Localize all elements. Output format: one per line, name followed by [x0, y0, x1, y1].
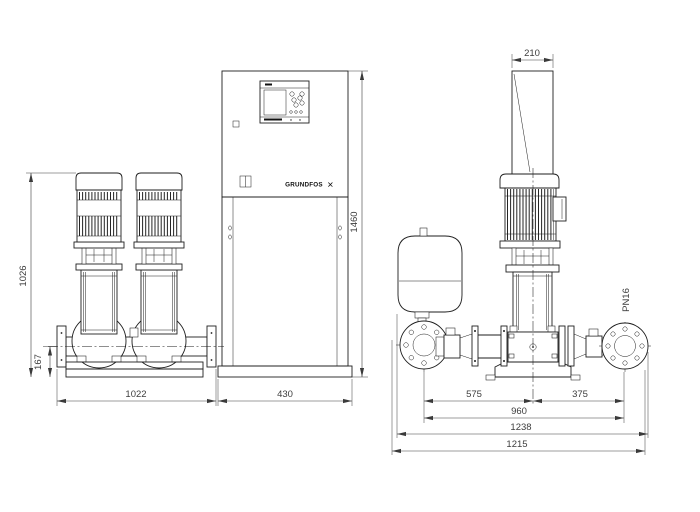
pn16-label: PN16 [621, 288, 632, 312]
dim-430-label: 430 [277, 389, 293, 400]
dimensional-drawing: GRUNDFOS ✕ 1026 167 1022 430 [0, 0, 700, 512]
logo-text: GRUNDFOS [285, 182, 323, 189]
motor-terminal-box [553, 197, 566, 221]
motor-fan-cover [500, 174, 559, 188]
logo-mark: ✕ [327, 181, 334, 190]
suction-valve [444, 335, 460, 358]
dim-167-label: 167 [33, 354, 44, 370]
dim-cabinet-width: 430 [218, 379, 352, 406]
front-view: GRUNDFOS ✕ 1026 167 1022 430 [18, 71, 368, 406]
dim-cabinet-height: 1460 [348, 71, 368, 377]
dim-210-label: 210 [524, 48, 540, 59]
dim-cabinet-depth: 210 [512, 48, 553, 68]
dim-575-label: 575 [466, 389, 482, 400]
door-button [233, 121, 239, 127]
dim-1215-label: 1215 [506, 439, 527, 450]
dim-pump-width: 1022 [57, 369, 216, 406]
suction-pipework [436, 326, 507, 366]
grundfos-logo: GRUNDFOS ✕ [285, 181, 334, 190]
dim-1460-label: 1460 [349, 211, 360, 232]
panel-display [264, 90, 286, 115]
dim-1238-label: 1238 [510, 422, 531, 433]
chamber-stack-side [513, 272, 552, 332]
dim-960-label: 960 [511, 406, 527, 417]
diaphragm-tank [398, 228, 462, 323]
side-view: PN16 210 575 375 960 1238 [392, 48, 651, 455]
drawing-canvas: GRUNDFOS ✕ 1026 167 1022 430 [0, 0, 700, 512]
cabinet-plinth [218, 366, 352, 377]
pump-right [134, 173, 184, 334]
dim-960: 960 [424, 406, 624, 418]
door-handle [240, 176, 251, 187]
dim-1026-label: 1026 [18, 265, 29, 286]
discharge-flange [599, 322, 651, 372]
panel-buttons [290, 92, 304, 113]
manifold-plug [130, 328, 138, 337]
dim-375-label: 375 [572, 389, 588, 400]
tank-top-nipple [420, 228, 427, 236]
dim-1022-label: 1022 [125, 389, 146, 400]
cabinet-side [512, 71, 553, 176]
control-panel [260, 81, 309, 123]
dim-manifold-height: 167 [33, 347, 57, 378]
discharge-valve [586, 336, 602, 357]
control-cabinet: GRUNDFOS ✕ [218, 71, 352, 377]
pump-left [74, 173, 124, 334]
